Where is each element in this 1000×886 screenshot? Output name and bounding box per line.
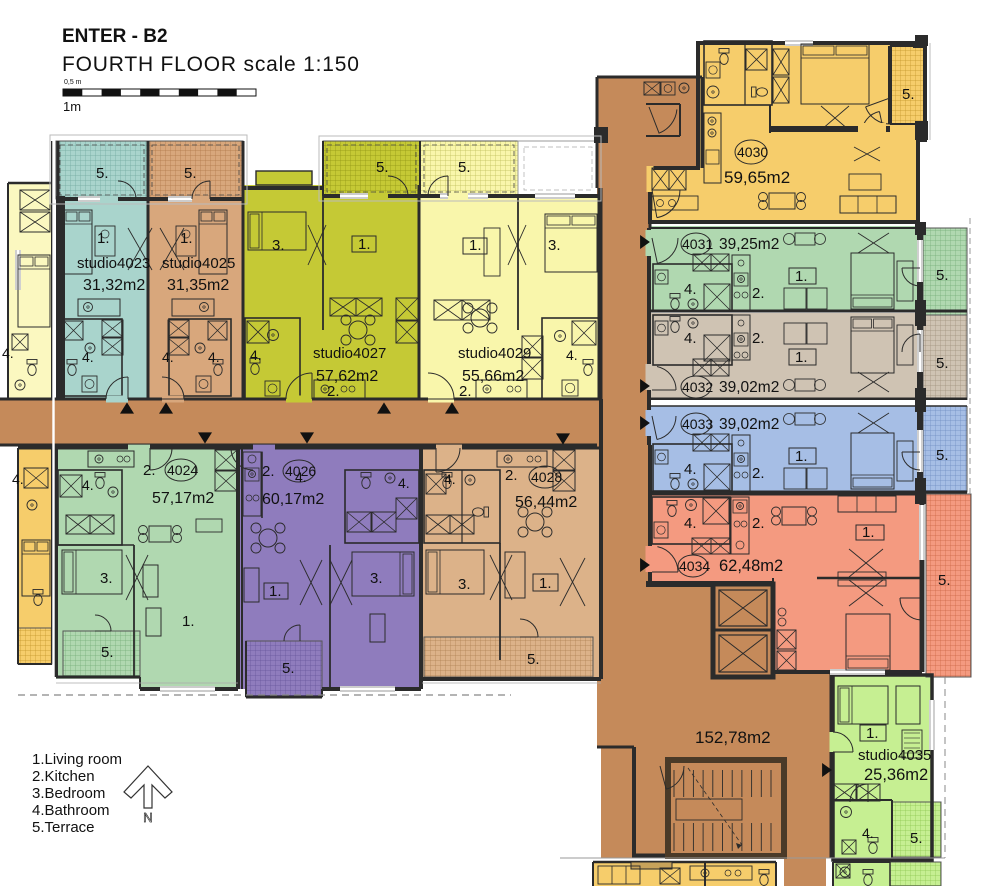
svg-text:0,5 m: 0,5 m bbox=[64, 79, 82, 86]
svg-text:FOURTH FLOOR scale 1:150: FOURTH FLOOR scale 1:150 bbox=[62, 53, 360, 76]
svg-text:studio4035: studio4035 bbox=[858, 747, 931, 764]
svg-text:1.Living room: 1.Living room bbox=[32, 751, 122, 768]
svg-text:5.: 5. bbox=[910, 830, 923, 847]
svg-text:5.: 5. bbox=[184, 165, 197, 182]
svg-text:1.: 1. bbox=[866, 725, 879, 742]
svg-text:5.: 5. bbox=[936, 355, 949, 372]
svg-text:4.: 4. bbox=[2, 345, 14, 361]
svg-text:59,65m2: 59,65m2 bbox=[724, 168, 790, 187]
svg-text:5.: 5. bbox=[938, 572, 951, 589]
svg-text:5.: 5. bbox=[527, 651, 540, 668]
svg-text:2.Kitchen: 2.Kitchen bbox=[32, 768, 95, 785]
svg-text:31,32m2: 31,32m2 bbox=[83, 277, 145, 294]
svg-text:4031: 4031 bbox=[682, 236, 713, 252]
svg-text:1.: 1. bbox=[795, 349, 808, 366]
svg-text:4.: 4. bbox=[82, 349, 94, 365]
svg-text:5.: 5. bbox=[376, 159, 389, 176]
svg-text:4.: 4. bbox=[566, 347, 578, 363]
svg-text:1.: 1. bbox=[269, 583, 282, 600]
svg-text:5.: 5. bbox=[101, 644, 114, 661]
svg-text:1.: 1. bbox=[862, 524, 875, 541]
svg-text:4.: 4. bbox=[684, 281, 697, 298]
svg-text:57,62m2: 57,62m2 bbox=[316, 368, 378, 385]
svg-text:studio4025: studio4025 bbox=[162, 255, 235, 272]
svg-text:25,36m2: 25,36m2 bbox=[864, 766, 928, 784]
svg-text:1.: 1. bbox=[795, 448, 808, 465]
svg-text:3.: 3. bbox=[272, 237, 285, 254]
svg-text:4.: 4. bbox=[208, 349, 220, 365]
svg-text:60,17m2: 60,17m2 bbox=[262, 491, 324, 508]
svg-text:4.: 4. bbox=[444, 471, 456, 487]
svg-text:4.: 4. bbox=[162, 349, 174, 365]
svg-text:5.: 5. bbox=[902, 86, 915, 103]
svg-text:2.: 2. bbox=[752, 330, 765, 347]
svg-text:4.Bathroom: 4.Bathroom bbox=[32, 802, 110, 819]
svg-text:1.: 1. bbox=[795, 268, 808, 285]
svg-text:57,17m2: 57,17m2 bbox=[152, 490, 214, 507]
svg-text:2.: 2. bbox=[505, 467, 518, 484]
svg-text:1.: 1. bbox=[182, 613, 195, 630]
svg-text:152,78m2: 152,78m2 bbox=[695, 728, 771, 747]
svg-text:5.: 5. bbox=[936, 267, 949, 284]
svg-text:3.: 3. bbox=[100, 570, 113, 587]
svg-text:4028: 4028 bbox=[531, 469, 562, 485]
svg-text:1.: 1. bbox=[97, 230, 110, 247]
svg-text:4.: 4. bbox=[250, 347, 262, 363]
svg-text:ENTER - B2: ENTER - B2 bbox=[62, 26, 168, 47]
svg-text:5.: 5. bbox=[458, 159, 471, 176]
svg-text:3.: 3. bbox=[458, 576, 471, 593]
svg-text:1.: 1. bbox=[358, 236, 371, 253]
svg-text:1.: 1. bbox=[539, 575, 552, 592]
svg-text:studio4027: studio4027 bbox=[313, 345, 386, 362]
svg-text:2.: 2. bbox=[143, 462, 156, 479]
svg-text:5.Terrace: 5.Terrace bbox=[32, 819, 95, 836]
svg-text:39,02m2: 39,02m2 bbox=[719, 416, 779, 433]
svg-text:3.: 3. bbox=[370, 570, 383, 587]
svg-text:62,48m2: 62,48m2 bbox=[719, 557, 783, 575]
svg-text:4034: 4034 bbox=[679, 558, 710, 574]
svg-text:3.Bedroom: 3.Bedroom bbox=[32, 785, 105, 802]
svg-text:1m: 1m bbox=[63, 99, 81, 114]
svg-text:4.: 4. bbox=[684, 515, 697, 532]
svg-text:39,25m2: 39,25m2 bbox=[719, 236, 779, 253]
svg-text:2.: 2. bbox=[752, 465, 765, 482]
svg-text:4.: 4. bbox=[684, 330, 697, 347]
svg-text:N: N bbox=[143, 810, 152, 825]
svg-text:2.: 2. bbox=[752, 515, 765, 532]
svg-text:4033: 4033 bbox=[682, 416, 713, 432]
svg-text:2.: 2. bbox=[327, 383, 340, 400]
svg-text:1.: 1. bbox=[180, 230, 193, 247]
svg-text:4024: 4024 bbox=[167, 462, 198, 478]
svg-text:31,35m2: 31,35m2 bbox=[167, 277, 229, 294]
svg-text:5.: 5. bbox=[96, 165, 109, 182]
svg-text:39,02m2: 39,02m2 bbox=[719, 379, 779, 396]
svg-text:3.: 3. bbox=[548, 237, 561, 254]
svg-text:4.: 4. bbox=[862, 825, 874, 841]
svg-text:4032: 4032 bbox=[682, 379, 713, 395]
svg-text:2.: 2. bbox=[752, 285, 765, 302]
svg-text:4.: 4. bbox=[398, 475, 410, 491]
svg-text:4.: 4. bbox=[82, 477, 94, 493]
svg-text:4.: 4. bbox=[295, 469, 307, 485]
svg-text:2.: 2. bbox=[262, 463, 275, 480]
svg-text:4.: 4. bbox=[12, 471, 24, 487]
svg-text:4030: 4030 bbox=[737, 144, 768, 160]
svg-text:56,44m2: 56,44m2 bbox=[515, 494, 577, 511]
svg-text:studio4029: studio4029 bbox=[458, 345, 531, 362]
svg-text:1.: 1. bbox=[469, 237, 482, 254]
svg-text:studio4023: studio4023 bbox=[77, 255, 150, 272]
svg-text:5.: 5. bbox=[936, 447, 949, 464]
svg-text:5.: 5. bbox=[282, 660, 295, 677]
svg-text:2.: 2. bbox=[459, 383, 472, 400]
svg-text:4.: 4. bbox=[684, 461, 697, 478]
